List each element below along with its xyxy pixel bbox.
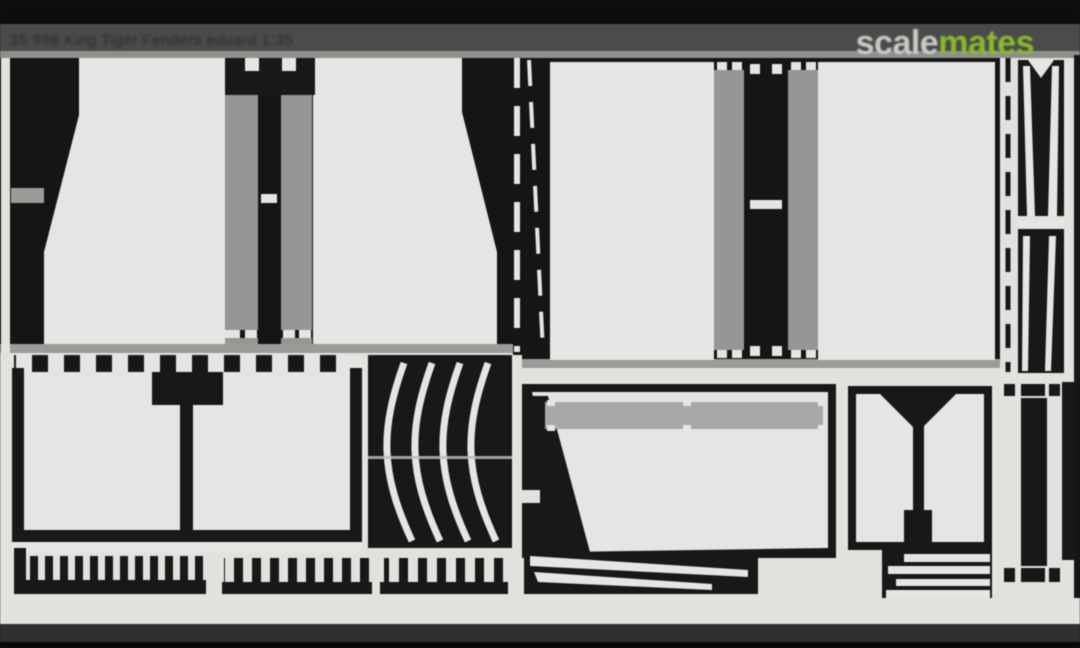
stacked-strips	[882, 550, 992, 602]
scalemates-watermark: scalemates	[856, 24, 1034, 62]
castellated-edge	[14, 355, 350, 372]
caption-text: 35 998 King Tiger Fenders eduard 1:35	[10, 32, 293, 49]
photo-bottom-bands	[0, 598, 1080, 648]
fender-section-top-left	[11, 58, 497, 344]
fender-panel-right-c	[550, 62, 714, 360]
pe-fret-illustration: 35 998 King Tiger Fenders eduard 1:35 sc…	[0, 0, 1080, 648]
header-black-strip	[0, 0, 1080, 24]
tray-with-castellated-edge	[12, 355, 362, 553]
v-notch	[225, 58, 315, 95]
watermark-scale: scale	[856, 24, 939, 62]
gray-bar	[545, 402, 823, 429]
fret-tab	[11, 188, 44, 203]
watermark-mates: mates	[938, 24, 1034, 62]
pe-fret-photo: 35 998 King Tiger Fenders eduard 1:35 sc…	[0, 0, 1080, 648]
t-slot	[152, 372, 223, 405]
curved-fender-ribs	[368, 355, 522, 548]
fender-panel-right-d	[818, 62, 995, 360]
blade-strips	[524, 552, 758, 594]
